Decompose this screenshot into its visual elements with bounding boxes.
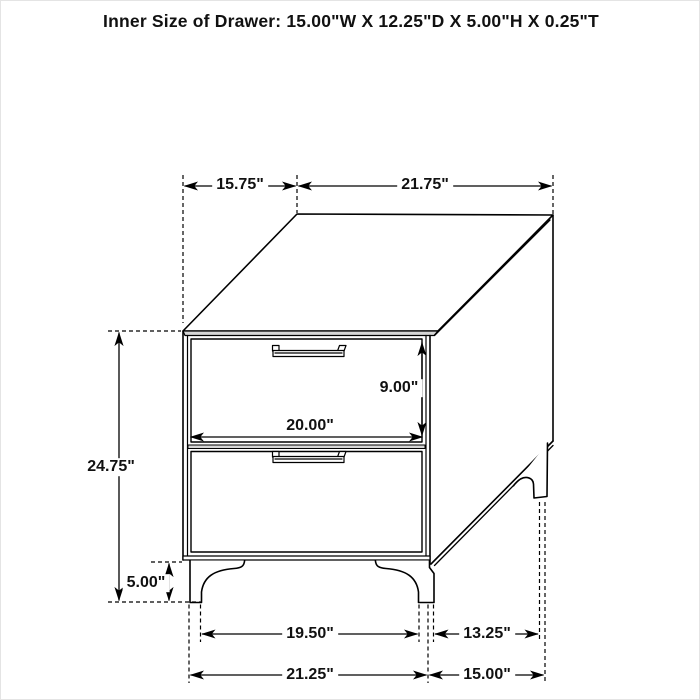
rear-right-leg [514,443,548,498]
drawer-divider [188,445,425,449]
dim-label-overall-height: 24.75" [83,458,139,476]
dim-label-base-width: 21.25" [282,666,338,684]
dim-label-top-width: 21.75" [397,176,453,194]
nightstand-line-drawing [1,1,700,700]
dim-label-drawer-front-width: 20.00" [282,417,338,435]
dim-label-base-inner-width: 19.50" [282,625,338,643]
front-face [183,331,434,603]
dim-label-drawer-front-height: 9.00" [376,379,423,397]
dim-label-base-depth: 15.00" [459,666,515,684]
dim-label-base-inner-depth: 13.25" [459,625,515,643]
front-left-leg [190,561,245,603]
front-right-leg [375,561,434,603]
bottom-rail [183,556,430,560]
dim-label-top-depth: 15.75" [212,176,268,194]
dim-label-leg-height: 5.00" [123,574,170,592]
furniture-dimension-diagram: Inner Size of Drawer: 15.00"W X 12.25"D … [0,0,700,700]
drawer-bottom [191,452,422,553]
top-face [183,214,553,336]
